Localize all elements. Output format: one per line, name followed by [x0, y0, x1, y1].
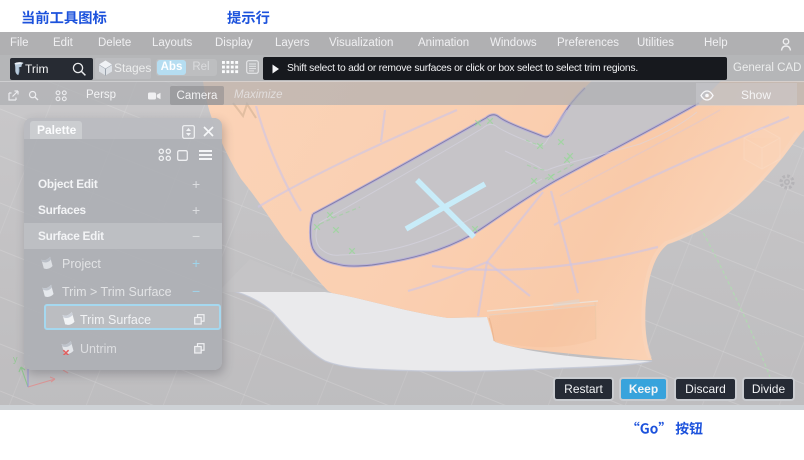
svg-text:y: y: [13, 354, 18, 364]
